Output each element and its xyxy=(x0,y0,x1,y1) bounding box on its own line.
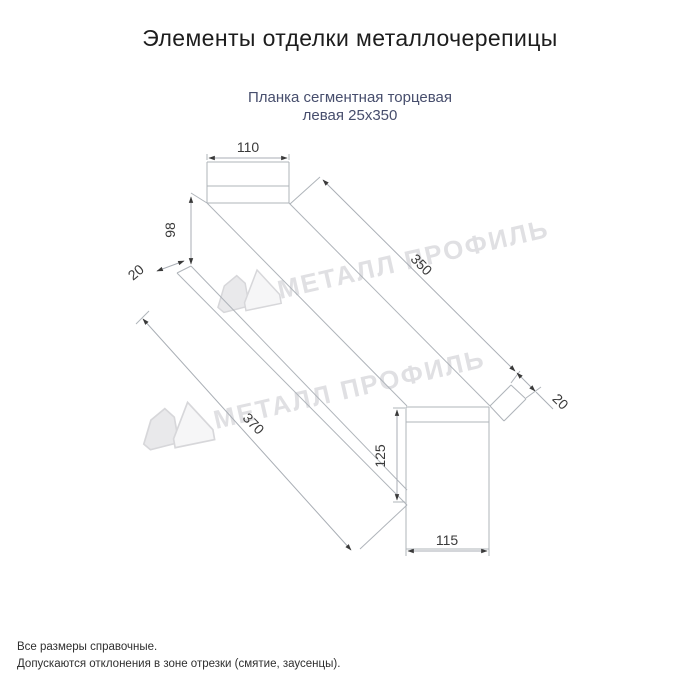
watermark-lower: МЕТАЛЛ ПРОФИЛЬ xyxy=(138,343,488,453)
technical-drawing: МЕТАЛЛ ПРОФИЛЬ МЕТАЛЛ ПРОФИЛЬ xyxy=(0,0,700,700)
brand-logo-icon xyxy=(213,267,282,315)
footnotes: Все размеры справочные. Допускаются откл… xyxy=(17,639,340,673)
dimension-labels: 110 98 20 350 20 370 125 115 xyxy=(125,139,572,548)
dim-right-hem-label: 20 xyxy=(549,390,571,412)
dim-left-hem-label: 20 xyxy=(125,261,147,283)
footnote-line1: Все размеры справочные. xyxy=(17,639,340,656)
dim-cap-width-label: 110 xyxy=(237,139,260,155)
dim-side-height-label: 98 xyxy=(162,222,178,238)
brand-logo-icon xyxy=(138,399,215,453)
drawing-page: Элементы отделки металлочерепицы Планка … xyxy=(0,0,700,700)
dim-end-height-label: 125 xyxy=(372,444,388,468)
dimension-lines xyxy=(143,158,553,551)
footnote-line2: Допускаются отклонения в зоне отрезки (с… xyxy=(17,656,340,673)
dim-end-width-label: 115 xyxy=(436,532,459,548)
watermark-upper: МЕТАЛЛ ПРОФИЛЬ xyxy=(213,213,552,315)
